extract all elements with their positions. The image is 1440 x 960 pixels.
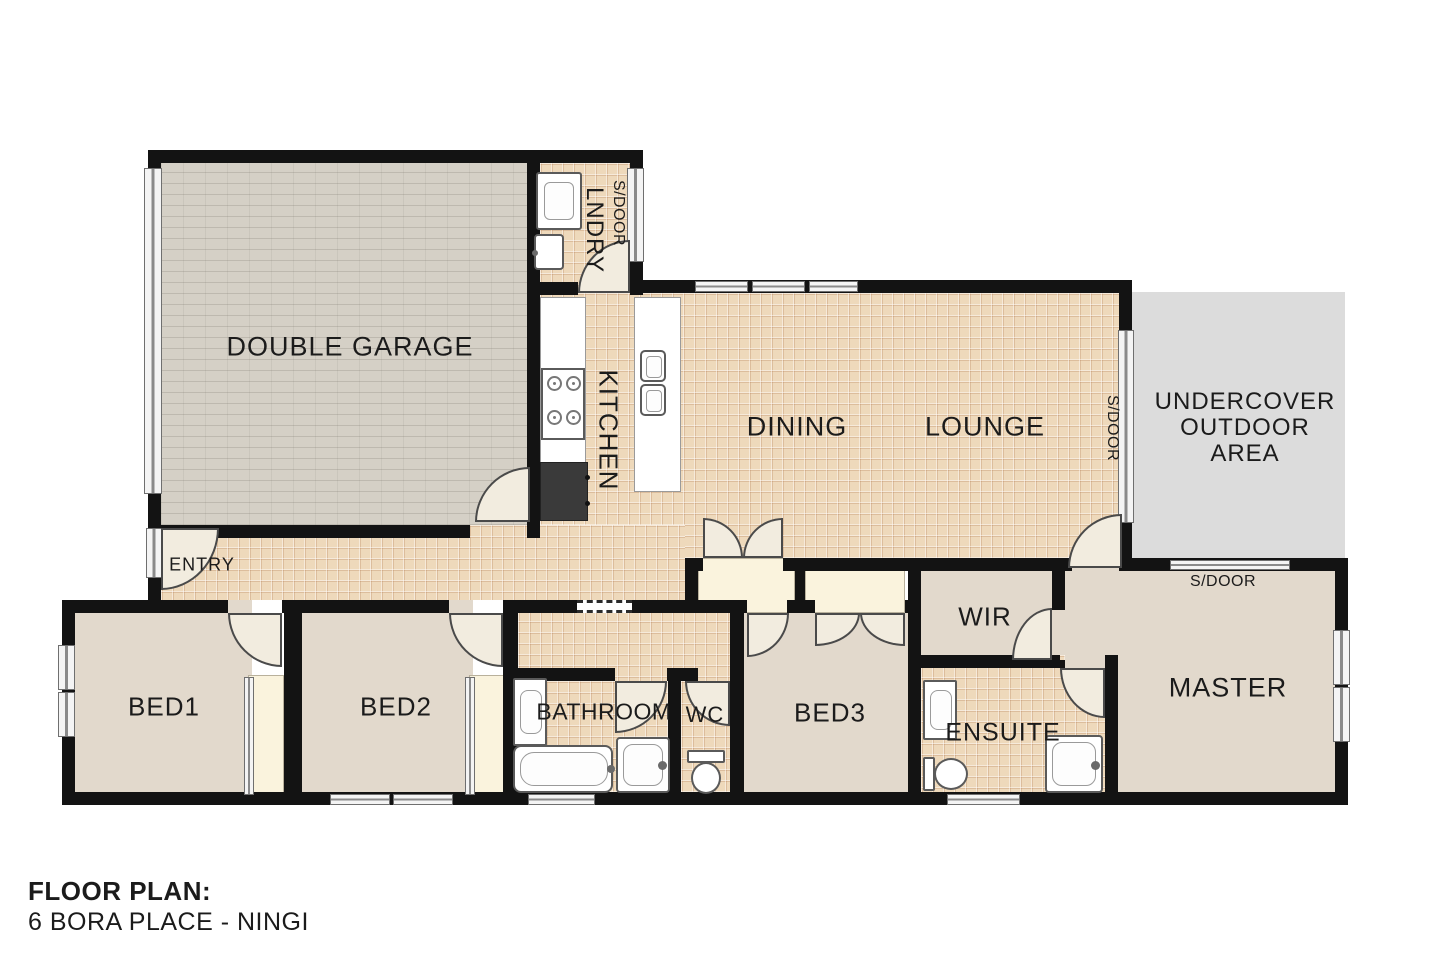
garage-door-panel (144, 168, 162, 494)
shower-head-icon (1091, 761, 1100, 770)
wc-label: WC (686, 702, 725, 728)
burner-icon (566, 410, 581, 425)
burner-icon (566, 376, 581, 391)
washing-machine-drum (544, 182, 574, 220)
lounge-sdoor-label: S/DOOR (1103, 395, 1121, 461)
tap-icon (607, 765, 615, 773)
burner-icon (547, 410, 562, 425)
fridge-icon (540, 462, 588, 521)
wall (783, 558, 1072, 571)
ensuite-window (947, 794, 1020, 805)
bed2-window (393, 794, 453, 805)
laundry-sink-icon (534, 234, 564, 270)
island-sink-icon (640, 350, 666, 382)
bathtub-basin (520, 752, 608, 786)
lounge-label: LOUNGE (925, 412, 1045, 443)
island-sink-icon (640, 384, 666, 416)
master-window (1333, 687, 1350, 742)
shower-head-icon (658, 761, 667, 770)
bed1-robe-slider (244, 677, 254, 795)
burner-icon (547, 376, 562, 391)
shower-icon (616, 737, 670, 793)
bathroom-window (528, 794, 595, 805)
laundry-label: LNDRY (580, 187, 608, 273)
wall (148, 578, 161, 613)
floor-plan: DOUBLE GARAGE LNDRY S/DOOR KITCHEN DININ… (0, 0, 1440, 960)
bed3-label: BED3 (794, 698, 866, 729)
dining-window (809, 281, 858, 292)
wall (1052, 558, 1065, 610)
wall (795, 558, 805, 613)
bathroom-label: BATHROOM (536, 699, 671, 726)
hall-opening-marker (577, 600, 632, 613)
entry-door-leaf (146, 528, 162, 578)
floorplan-title: FLOOR PLAN: (28, 876, 211, 907)
bed1-label: BED1 (128, 692, 200, 723)
shower-base (1052, 742, 1096, 786)
fridge-handle (585, 501, 590, 506)
master-sliding-door (1170, 560, 1290, 570)
wall (540, 282, 578, 295)
wall (148, 150, 643, 163)
dining-window (752, 281, 805, 292)
wall (730, 600, 744, 800)
tap-icon (532, 250, 538, 256)
bed1-window (58, 645, 75, 690)
master-window (1333, 630, 1350, 685)
dining-window (695, 281, 748, 292)
bed2-robe-slider (465, 677, 475, 795)
garage-label: DOUBLE GARAGE (226, 332, 473, 363)
toilet-icon (934, 758, 968, 790)
wall (685, 558, 698, 613)
outdoor-line-3: AREA (1155, 441, 1336, 467)
fridge-handle (585, 475, 590, 480)
dining-label: DINING (747, 412, 848, 443)
outdoor-area-label: UNDERCOVER OUTDOOR AREA (1155, 389, 1336, 467)
master-sdoor-label: S/DOOR (1190, 573, 1256, 591)
master-label: MASTER (1169, 673, 1288, 704)
floorplan-address: 6 BORA PLACE - NINGI (28, 908, 309, 937)
bathtub-icon (513, 745, 613, 793)
wall (282, 600, 449, 613)
wall (1052, 660, 1065, 668)
ensuite-label: ENSUITE (945, 719, 1060, 748)
shower-base (623, 744, 663, 786)
bed2-window (330, 794, 390, 805)
outdoor-line-1: UNDERCOVER (1155, 389, 1336, 415)
cooktop-icon (541, 368, 585, 440)
toilet-icon (691, 762, 721, 794)
wall (1105, 655, 1118, 805)
wir-label: WIR (958, 602, 1012, 633)
wall (62, 600, 228, 613)
kitchen-label: KITCHEN (593, 369, 624, 490)
sink-basin (646, 390, 662, 412)
sink-basin (646, 356, 662, 378)
bed2-label: BED2 (360, 692, 432, 723)
wall (908, 558, 921, 805)
washing-machine-icon (536, 172, 582, 230)
laundry-sdoor-label: S/DOOR (609, 180, 627, 246)
entry-label: ENTRY (169, 555, 235, 576)
wall (284, 600, 302, 797)
outdoor-line-2: OUTDOOR (1155, 415, 1336, 441)
bed1-window (58, 692, 75, 737)
